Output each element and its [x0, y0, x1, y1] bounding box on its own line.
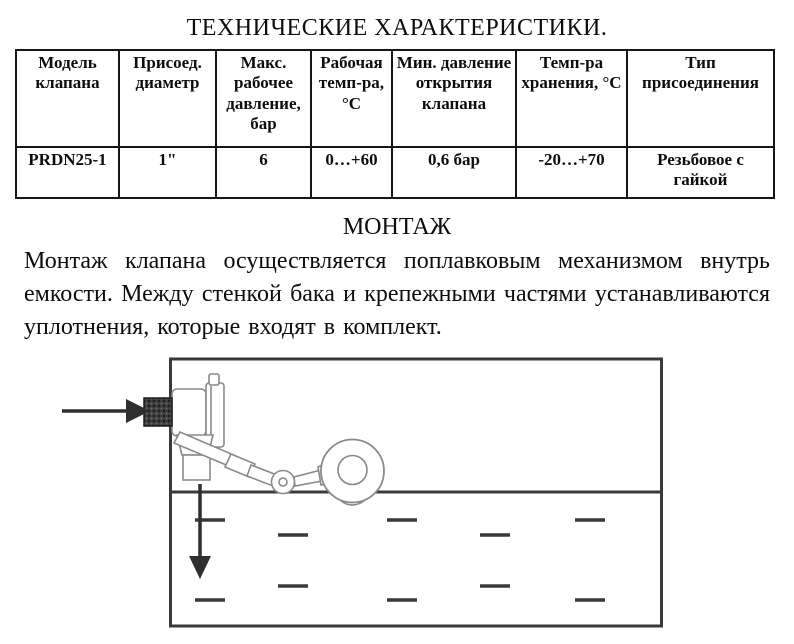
cell-model: PRDN25-1: [16, 147, 119, 198]
cell-min-opening-pressure: 0,6 бар: [392, 147, 516, 198]
flange-top-tab: [209, 374, 219, 385]
outlet-arrow-head: [189, 556, 211, 579]
table-row: PRDN25-1 1" 6 0…+60 0,6 бар -20…+70 Резь…: [16, 147, 774, 198]
section-heading-montage: МОНТАЖ: [0, 211, 794, 243]
float-valve: [172, 374, 384, 505]
float-ball-inner: [338, 456, 367, 485]
cell-connection-type: Резьбовое с гайкой: [627, 147, 774, 198]
col-header-model: Модель клапана: [16, 50, 119, 147]
table-header-row: Модель клапана Присоед. диаметр Макс. ра…: [16, 50, 774, 147]
cell-max-pressure: 6: [216, 147, 311, 198]
valve-body: [172, 389, 206, 436]
cell-diameter: 1": [119, 147, 216, 198]
installation-paragraph: Монтаж клапана осуществляется поплавковы…: [24, 245, 770, 344]
tank-outline: [170, 359, 662, 626]
col-header-max-pressure: Макс. рабочее давление, бар: [216, 50, 311, 147]
outlet-port: [183, 455, 210, 480]
installation-diagram: [0, 350, 794, 644]
col-header-connection-type: Тип присоединения: [627, 50, 774, 147]
col-header-min-opening-pressure: Мин. давление открытия клапана: [392, 50, 516, 147]
inlet-nut: [144, 398, 172, 426]
specs-table: Модель клапана Присоед. диаметр Макс. ра…: [15, 49, 775, 199]
col-header-diameter: Присоед. диаметр: [119, 50, 216, 147]
page-title: ТЕХНИЧЕСКИЕ ХАРАКТЕРИСТИКИ.: [0, 12, 794, 44]
cell-storage-temp: -20…+70: [516, 147, 627, 198]
water-dashes: [195, 520, 605, 600]
col-header-working-temp: Рабочая темп-ра, °С: [311, 50, 392, 147]
cell-working-temp: 0…+60: [311, 147, 392, 198]
col-header-storage-temp: Темп-ра хранения, °С: [516, 50, 627, 147]
float-link: [294, 470, 322, 486]
arm-pivot-hole: [279, 478, 287, 486]
